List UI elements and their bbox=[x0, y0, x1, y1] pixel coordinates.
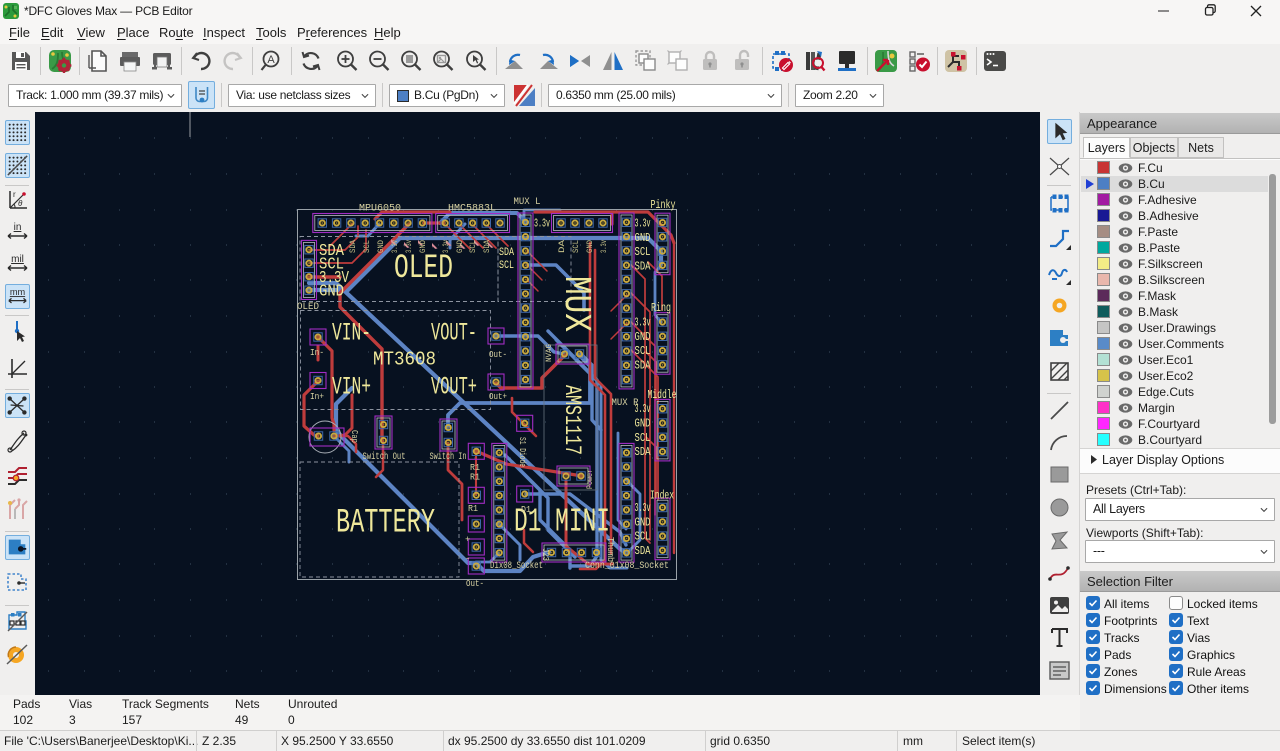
svg-text:+: + bbox=[465, 535, 470, 545]
svg-text:Cap: Cap bbox=[349, 430, 359, 443]
svg-text:Switch In: Switch In bbox=[430, 451, 467, 463]
svg-text:Power: Power bbox=[586, 469, 595, 489]
svg-text:BATTERY: BATTERY bbox=[336, 505, 435, 543]
svg-text:MUX L: MUX L bbox=[514, 196, 541, 208]
svg-text:3.3v: 3.3v bbox=[635, 402, 651, 416]
svg-text:mm: mm bbox=[10, 287, 26, 297]
svg-text:SDA: SDA bbox=[483, 240, 492, 253]
svg-text:VIN+: VIN+ bbox=[332, 372, 371, 401]
svg-text:in: in bbox=[14, 222, 22, 233]
svg-text:MUX: MUX bbox=[554, 276, 597, 332]
svg-text:NVAG: NVAG bbox=[545, 344, 554, 362]
svg-text:SCL: SCL bbox=[635, 344, 651, 358]
svg-text:GND: GND bbox=[586, 240, 595, 253]
svg-text:3.3v: 3.3v bbox=[600, 240, 609, 253]
svg-text:GND: GND bbox=[319, 283, 344, 302]
svg-text:In-: In- bbox=[310, 348, 324, 358]
svg-text:θ: θ bbox=[18, 199, 23, 208]
svg-text:D1: D1 bbox=[521, 505, 531, 515]
svg-text:R1: R1 bbox=[470, 463, 480, 473]
svg-text:AMS1117: AMS1117 bbox=[559, 385, 585, 455]
svg-text:SDA: SDA bbox=[635, 445, 652, 459]
svg-text:3.3v: 3.3v bbox=[635, 217, 651, 231]
svg-text:R1: R1 bbox=[468, 504, 478, 514]
svg-text:Out+: Out+ bbox=[489, 392, 507, 402]
svg-text:GND: GND bbox=[635, 515, 651, 529]
svg-text:GND: GND bbox=[635, 231, 651, 245]
svg-text:SDA: SDA bbox=[635, 544, 652, 558]
svg-text:Pinky: Pinky bbox=[651, 198, 676, 212]
svg-text:VOUT+: VOUT+ bbox=[431, 372, 477, 401]
svg-text:GND: GND bbox=[635, 417, 651, 431]
svg-text:Ring: Ring bbox=[651, 301, 671, 315]
svg-text:SCL: SCL bbox=[499, 260, 514, 272]
svg-text:3.3v: 3.3v bbox=[405, 240, 414, 253]
svg-text:Switch Out: Switch Out bbox=[363, 451, 406, 463]
svg-text:DA: DA bbox=[558, 240, 567, 253]
svg-text:SDA: SDA bbox=[499, 247, 514, 259]
svg-text:SCL: SCL bbox=[635, 431, 651, 445]
svg-text:MPU6050: MPU6050 bbox=[359, 203, 401, 215]
svg-text:Out-: Out- bbox=[489, 350, 507, 360]
svg-text:A: A bbox=[267, 54, 275, 66]
svg-text:GND: GND bbox=[377, 240, 386, 253]
svg-text:In+: In+ bbox=[310, 392, 324, 402]
svg-text:SCL: SCL bbox=[635, 530, 651, 544]
svg-text:OLED: OLED bbox=[297, 302, 319, 313]
svg-text:-: - bbox=[465, 554, 470, 564]
svg-text:mil: mil bbox=[11, 254, 24, 265]
svg-text:Thumb: Thumb bbox=[605, 537, 615, 562]
svg-text:r: r bbox=[13, 190, 16, 199]
svg-text:GND: GND bbox=[456, 240, 465, 253]
svg-text:3.3v: 3.3v bbox=[442, 240, 451, 253]
svg-text:Out-: Out- bbox=[466, 579, 484, 589]
svg-text:D1x08_Socket: D1x08_Socket bbox=[490, 560, 543, 572]
svg-text:Middle: Middle bbox=[648, 388, 677, 402]
svg-text:Index: Index bbox=[650, 489, 674, 503]
svg-text:SDA: SDA bbox=[635, 259, 652, 273]
svg-text:HMC5883L: HMC5883L bbox=[448, 203, 496, 215]
svg-text:SDA: SDA bbox=[349, 240, 358, 253]
svg-text:GND: GND bbox=[419, 240, 428, 253]
svg-text:SCL: SCL bbox=[469, 240, 478, 253]
svg-text:3.3v: 3.3v bbox=[635, 501, 651, 515]
svg-text:3.3v: 3.3v bbox=[534, 217, 550, 231]
svg-text:SCL: SCL bbox=[572, 240, 581, 253]
svg-text:J23: J23 bbox=[540, 548, 550, 561]
svg-text:SCL: SCL bbox=[363, 240, 372, 253]
svg-text:R1: R1 bbox=[470, 473, 480, 483]
svg-text:Conn_01x08_Socket: Conn_01x08_Socket bbox=[585, 560, 669, 572]
svg-text:3.3v: 3.3v bbox=[391, 240, 400, 253]
svg-text:SCL: SCL bbox=[635, 245, 651, 259]
svg-text:SDA: SDA bbox=[635, 358, 652, 372]
svg-text:S1 Diode: S1 Diode bbox=[517, 437, 527, 467]
svg-text:GND: GND bbox=[635, 330, 651, 344]
svg-text:OLED: OLED bbox=[394, 250, 453, 288]
svg-text:VIN-: VIN- bbox=[332, 319, 371, 348]
svg-text:VOUT-: VOUT- bbox=[431, 319, 477, 348]
svg-text:3.3v: 3.3v bbox=[635, 316, 651, 330]
svg-text:MT3608: MT3608 bbox=[373, 349, 436, 371]
